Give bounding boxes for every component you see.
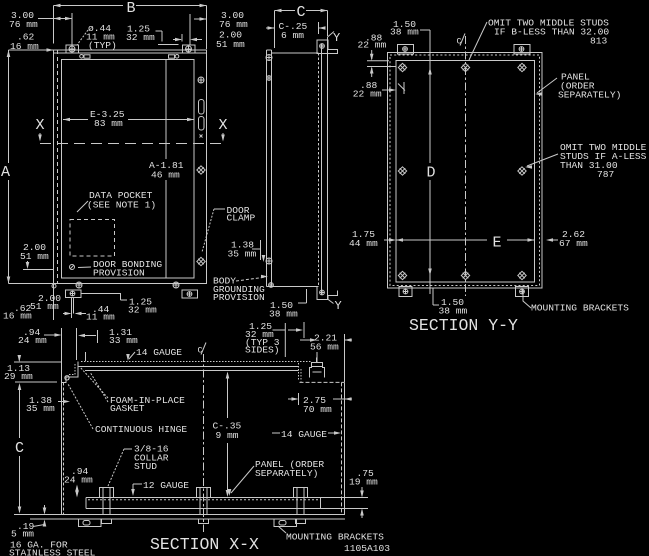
- svg-text:5 mm: 5 mm: [11, 529, 34, 540]
- svg-text:E: E: [493, 235, 502, 252]
- svg-text:SEPARATELY): SEPARATELY): [558, 90, 621, 101]
- svg-text:C: C: [198, 346, 203, 356]
- svg-text:19 mm: 19 mm: [349, 477, 378, 488]
- svg-text:X: X: [219, 117, 228, 134]
- svg-text:24 mm: 24 mm: [64, 475, 93, 486]
- svg-text:Y: Y: [335, 299, 342, 313]
- svg-text:C: C: [457, 37, 462, 47]
- svg-text:32 mm: 32 mm: [128, 305, 157, 316]
- svg-text:MOUNTING BRACKETS: MOUNTING BRACKETS: [531, 303, 629, 314]
- svg-text:16 mm: 16 mm: [3, 311, 32, 322]
- svg-text:CLAMP: CLAMP: [227, 213, 256, 224]
- svg-text:D: D: [427, 165, 436, 182]
- svg-text:38 mm: 38 mm: [390, 27, 419, 38]
- svg-text:44 mm: 44 mm: [349, 238, 378, 249]
- svg-text:MOUNTING BRACKETS: MOUNTING BRACKETS: [286, 532, 384, 543]
- svg-text:GASKET: GASKET: [110, 403, 145, 414]
- svg-text:11 mm: 11 mm: [86, 312, 115, 323]
- svg-text:51 mm: 51 mm: [20, 251, 49, 262]
- svg-text:CONTINUOUS HINGE: CONTINUOUS HINGE: [95, 424, 187, 435]
- svg-text:PROVISION: PROVISION: [213, 292, 265, 303]
- svg-text:70 mm: 70 mm: [303, 404, 332, 415]
- svg-text:14 GAUGE: 14 GAUGE: [136, 347, 182, 358]
- svg-text:C: C: [297, 4, 306, 21]
- svg-text:SECTION Y-Y: SECTION Y-Y: [409, 316, 518, 335]
- svg-text:16 mm: 16 mm: [10, 41, 39, 52]
- svg-text:38 mm: 38 mm: [439, 306, 468, 317]
- svg-text:X: X: [36, 117, 45, 134]
- svg-text:813: 813: [590, 36, 608, 47]
- svg-text:32 mm: 32 mm: [126, 32, 155, 43]
- svg-text:SIDES): SIDES): [245, 345, 280, 356]
- svg-text:(TYP): (TYP): [88, 40, 117, 51]
- svg-text:22 mm: 22 mm: [353, 89, 382, 100]
- svg-text:PROVISION: PROVISION: [93, 268, 145, 279]
- svg-text:A: A: [1, 164, 10, 181]
- svg-text:35 mm: 35 mm: [26, 403, 55, 414]
- svg-text:14 GAUGE: 14 GAUGE: [281, 429, 327, 440]
- svg-text:76 mm: 76 mm: [9, 19, 38, 30]
- svg-text:SEPARATELY): SEPARATELY): [255, 468, 318, 479]
- svg-text:33 mm: 33 mm: [109, 335, 138, 346]
- svg-text:51 mm: 51 mm: [30, 301, 59, 312]
- svg-text:76 mm: 76 mm: [219, 19, 248, 30]
- svg-text:38 mm: 38 mm: [269, 309, 298, 320]
- svg-text:(SEE NOTE 1): (SEE NOTE 1): [87, 200, 156, 211]
- svg-text:46 mm: 46 mm: [151, 170, 180, 181]
- svg-text:C: C: [15, 440, 24, 457]
- svg-text:B: B: [127, 0, 136, 17]
- svg-text:29 mm: 29 mm: [4, 371, 33, 382]
- svg-text:22 mm: 22 mm: [358, 40, 387, 51]
- svg-text:83 mm: 83 mm: [94, 118, 123, 129]
- svg-text:51 mm: 51 mm: [216, 39, 245, 50]
- svg-text:56 mm: 56 mm: [310, 342, 339, 353]
- svg-text:6 mm: 6 mm: [281, 30, 304, 41]
- svg-text:67 mm: 67 mm: [559, 238, 588, 249]
- svg-text:35 mm: 35 mm: [228, 249, 257, 260]
- svg-text:12 GAUGE: 12 GAUGE: [143, 480, 189, 491]
- svg-text:Y: Y: [333, 31, 340, 45]
- svg-text:787: 787: [597, 169, 614, 180]
- svg-text:9 mm: 9 mm: [216, 430, 239, 441]
- svg-text:STAINLESS STEEL: STAINLESS STEEL: [9, 548, 96, 556]
- svg-text:1105A103: 1105A103: [344, 543, 390, 554]
- svg-text:STUD: STUD: [134, 461, 157, 472]
- svg-text:24 mm: 24 mm: [18, 335, 47, 346]
- svg-text:SECTION X-X: SECTION X-X: [150, 535, 259, 554]
